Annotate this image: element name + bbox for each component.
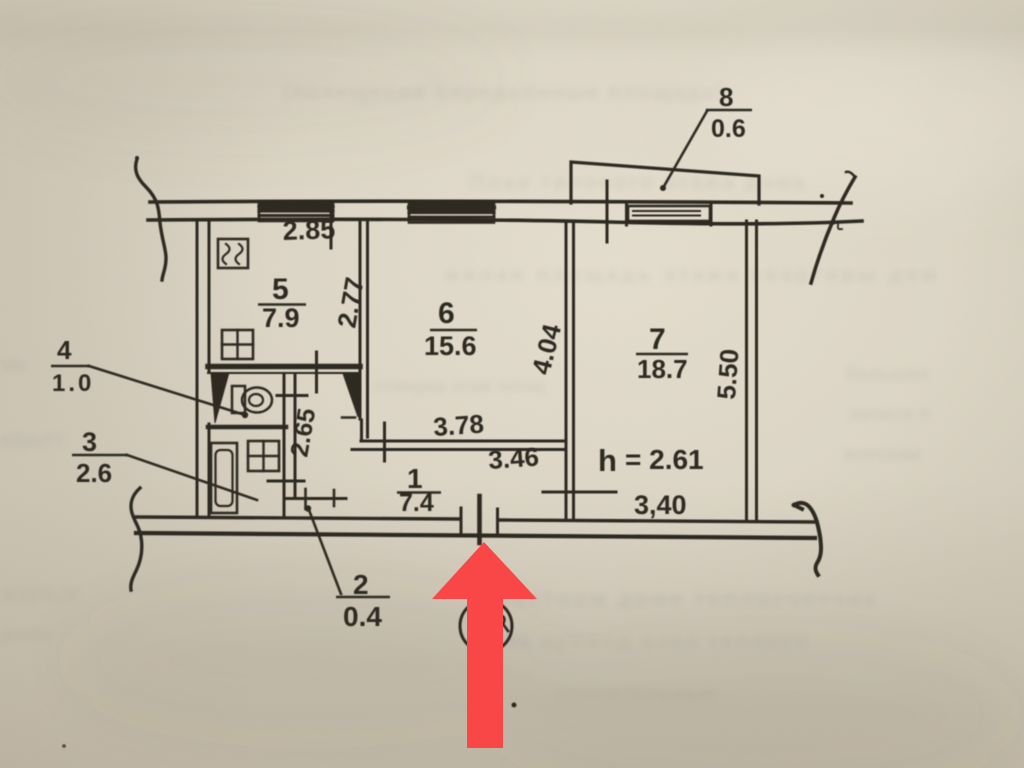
- svg-text:2.6: 2.6: [76, 458, 112, 488]
- svg-text:h: h: [598, 443, 617, 478]
- svg-text:2.85: 2.85: [282, 214, 336, 246]
- svg-text:как провод взял теплосч: как провод взял теплосч: [492, 628, 810, 653]
- svg-text:2: 2: [353, 569, 369, 600]
- svg-text:больших: больших: [845, 364, 930, 385]
- svg-text:дома: дома: [0, 623, 51, 645]
- svg-text:поверка этаж площ: поверка этаж площ: [373, 376, 546, 396]
- svg-text:5: 5: [272, 273, 289, 306]
- svg-text:(полещения определнные площади: (полещения определнные площади): [283, 81, 725, 104]
- svg-text:1.0: 1.0: [52, 370, 94, 397]
- svg-text:Мк: Мк: [0, 355, 28, 377]
- svg-text:3.46: 3.46: [487, 442, 540, 475]
- svg-text:отопительные: отопительные: [558, 680, 716, 705]
- svg-text:4: 4: [57, 335, 72, 365]
- svg-text:15.6: 15.6: [424, 331, 477, 361]
- svg-text:5.50: 5.50: [711, 348, 744, 401]
- svg-text:3: 3: [82, 427, 97, 457]
- svg-text:записи п: записи п: [848, 404, 930, 425]
- svg-text:8: 8: [719, 82, 733, 112]
- svg-text:18.7: 18.7: [637, 354, 688, 384]
- svg-text:= 2.61: = 2.61: [625, 444, 704, 475]
- svg-text:3,40: 3,40: [634, 490, 687, 520]
- svg-text:внесени: внесени: [843, 444, 921, 465]
- svg-text:жилая площадь этажа квартиры д: жилая площадь этажа квартиры дом: [444, 264, 940, 286]
- svg-text:7: 7: [649, 323, 666, 356]
- svg-text:0.4: 0.4: [343, 601, 382, 632]
- svg-text:частном доме теплосчетчик: частном доме теплосчетчик: [497, 586, 878, 611]
- svg-text:3.78: 3.78: [432, 409, 485, 442]
- svg-text:7.9: 7.9: [262, 303, 300, 333]
- svg-text:ЖИЛЫХ: ЖИЛЫХ: [0, 585, 80, 607]
- svg-text:7.4: 7.4: [399, 489, 434, 517]
- svg-text:6: 6: [438, 297, 455, 330]
- svg-text:КВАРТ: КВАРТ: [0, 431, 65, 453]
- svg-text:0.6: 0.6: [711, 115, 746, 143]
